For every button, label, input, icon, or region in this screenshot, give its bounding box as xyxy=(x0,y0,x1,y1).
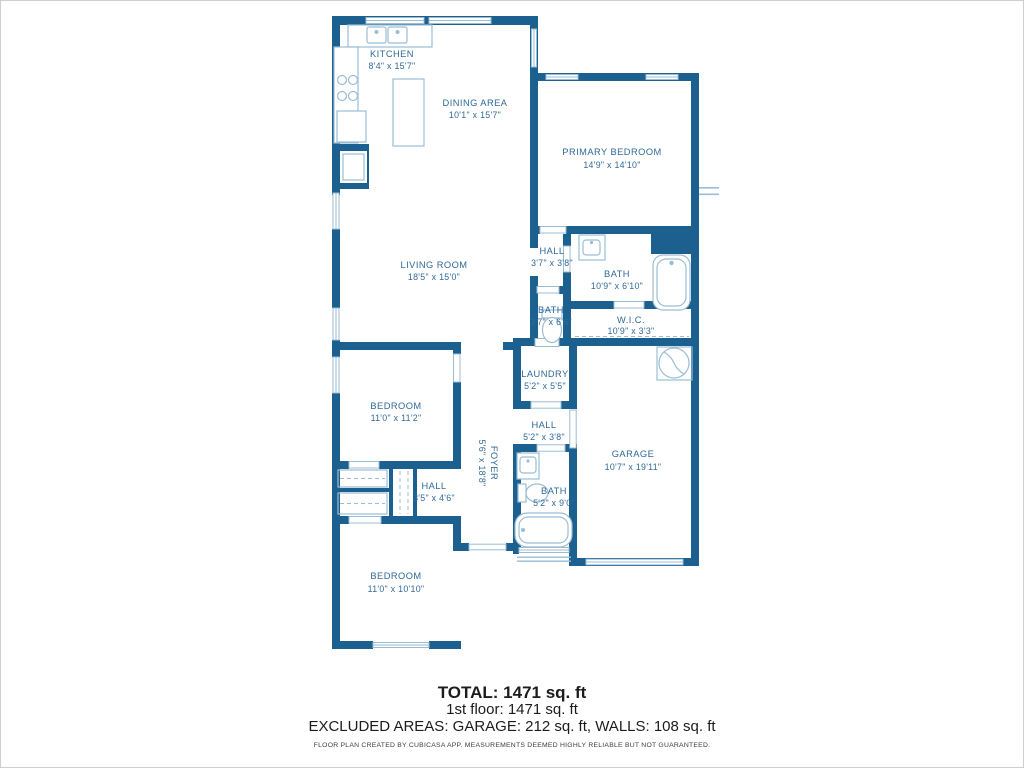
kitchen-island xyxy=(393,79,424,146)
svg-text:5'2" x 9'0": 5'2" x 9'0" xyxy=(533,498,575,508)
first-floor-area-text: 1st floor: 1471 sq. ft xyxy=(1,701,1023,718)
excluded-areas-text: EXCLUDED AREAS: GARAGE: 212 sq. ft, WALL… xyxy=(1,718,1023,735)
svg-text:GARAGE: GARAGE xyxy=(612,449,654,459)
room-laundry: LAUNDRY 5'2" x 5'5" xyxy=(521,369,568,391)
svg-text:3'7" x 6'6": 3'7" x 6'6" xyxy=(530,317,572,327)
svg-text:HALL: HALL xyxy=(421,481,446,491)
primary-bathtub-icon xyxy=(653,255,690,310)
svg-text:HALL: HALL xyxy=(539,246,564,256)
doors xyxy=(349,227,644,550)
lower-bath-vanity-icon xyxy=(517,453,539,479)
room-hall-mid: HALL 5'2" x 3'8" xyxy=(523,420,565,442)
svg-text:3'5" x 4'6": 3'5" x 4'6" xyxy=(413,493,455,503)
svg-text:LAUNDRY: LAUNDRY xyxy=(521,369,568,379)
room-foyer: FOYER 5'6" x 18'8" xyxy=(477,440,499,487)
room-garage: GARAGE 10'7" x 19'11" xyxy=(605,449,662,472)
room-kitchen: KITCHEN 8'4" x 15'7" xyxy=(369,49,416,71)
refrigerator-icon xyxy=(337,111,366,142)
svg-text:18'5" x 15'0": 18'5" x 15'0" xyxy=(408,272,460,282)
svg-text:3'7" x 3'8": 3'7" x 3'8" xyxy=(531,258,573,268)
floor-plan-drawing: KITCHEN 8'4" x 15'7" DINING AREA 10'1" x… xyxy=(1,1,1024,768)
svg-text:8'4" x 15'7": 8'4" x 15'7" xyxy=(369,61,416,71)
svg-text:5'2" x 5'5": 5'2" x 5'5" xyxy=(524,381,566,391)
svg-text:BATH: BATH xyxy=(541,486,567,496)
svg-text:14'9" x 14'10": 14'9" x 14'10" xyxy=(583,160,640,170)
svg-text:10'9" x 3'3": 10'9" x 3'3" xyxy=(608,326,655,336)
svg-text:10'9" x 6'10": 10'9" x 6'10" xyxy=(591,281,643,291)
svg-text:FOYER: FOYER xyxy=(489,446,499,480)
svg-text:PRIMARY BEDROOM: PRIMARY BEDROOM xyxy=(562,147,661,157)
svg-text:10'1" x 15'7": 10'1" x 15'7" xyxy=(449,110,501,120)
room-living-room: LIVING ROOM 18'5" x 15'0" xyxy=(401,260,468,282)
total-area-text: TOTAL: 1471 sq. ft xyxy=(1,684,1023,701)
svg-text:W.I.C.: W.I.C. xyxy=(617,315,645,325)
svg-text:11'0" x 10'10": 11'0" x 10'10" xyxy=(368,584,425,594)
svg-text:5'6" x 18'8": 5'6" x 18'8" xyxy=(477,440,487,487)
water-heater-icon xyxy=(657,347,692,380)
floor-plan-page: KITCHEN 8'4" x 15'7" DINING AREA 10'1" x… xyxy=(0,0,1024,768)
room-dining-area: DINING AREA 10'1" x 15'7" xyxy=(443,98,508,120)
svg-text:KITCHEN: KITCHEN xyxy=(370,49,414,59)
svg-text:BEDROOM: BEDROOM xyxy=(370,401,421,411)
svg-text:10'7" x 19'11": 10'7" x 19'11" xyxy=(605,462,662,472)
svg-text:DINING AREA: DINING AREA xyxy=(443,98,508,108)
room-bedroom-mid: BEDROOM 11'0" x 11'2" xyxy=(370,401,421,423)
primary-bath-vanity-icon xyxy=(579,235,605,260)
svg-text:5'2" x 3'8": 5'2" x 3'8" xyxy=(523,432,565,442)
area-summary: TOTAL: 1471 sq. ft 1st floor: 1471 sq. f… xyxy=(1,684,1023,749)
room-wic: W.I.C. 10'9" x 3'3" xyxy=(608,315,655,336)
svg-text:HALL: HALL xyxy=(531,420,556,430)
garage-door xyxy=(586,559,683,565)
svg-text:BEDROOM: BEDROOM xyxy=(370,571,421,581)
svg-text:11'0" x 11'2": 11'0" x 11'2" xyxy=(371,413,422,423)
svg-text:BATH: BATH xyxy=(538,305,564,315)
room-primary-bedroom: PRIMARY BEDROOM 14'9" x 14'10" xyxy=(562,147,661,170)
disclaimer-text: FLOOR PLAN CREATED BY CUBICASA APP. MEAS… xyxy=(1,742,1023,749)
room-hall-lower: HALL 3'5" x 4'6" xyxy=(413,481,455,503)
lower-bathtub-icon xyxy=(515,513,572,547)
svg-text:LIVING ROOM: LIVING ROOM xyxy=(401,260,468,270)
svg-text:BATH: BATH xyxy=(604,269,630,279)
fireplace-closet-box xyxy=(340,151,367,183)
room-bath-primary: BATH 10'9" x 6'10" xyxy=(591,269,643,291)
room-bedroom-lower: BEDROOM 11'0" x 10'10" xyxy=(368,571,425,594)
